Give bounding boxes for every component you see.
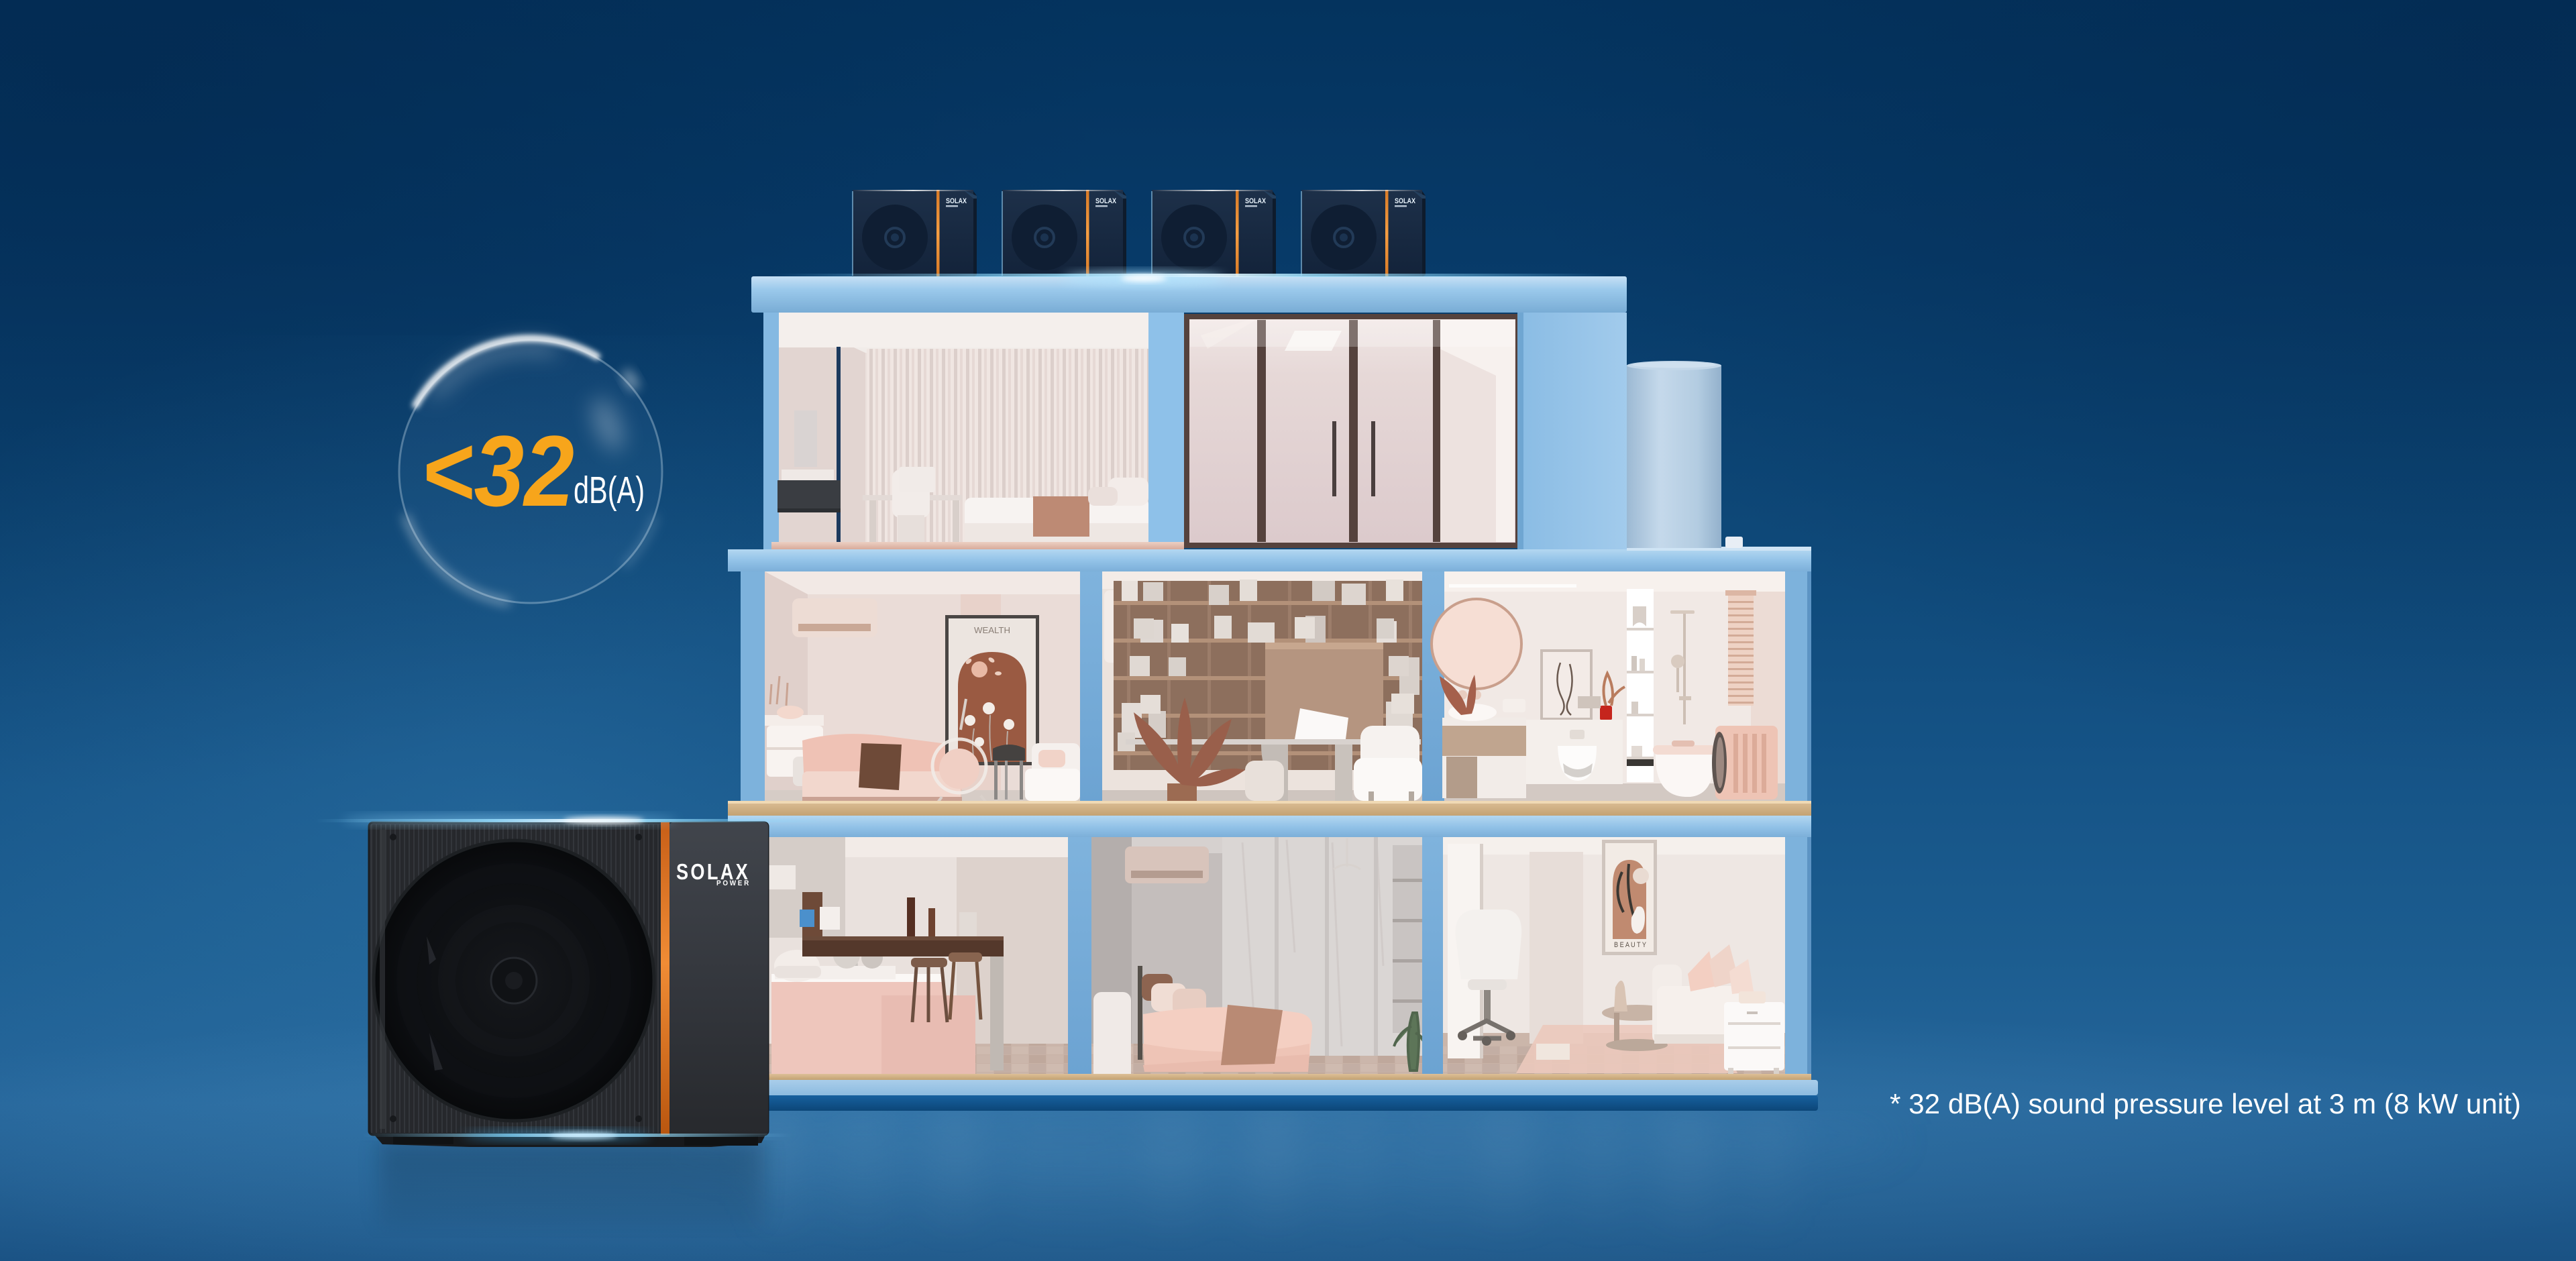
svg-text:SOLAX: SOLAX xyxy=(946,197,967,205)
svg-text:POWER: POWER xyxy=(716,879,751,887)
svg-text:SOLAX: SOLAX xyxy=(1095,197,1117,205)
svg-text:WEALTH: WEALTH xyxy=(974,625,1010,635)
svg-text:dB(A): dB(A) xyxy=(574,469,645,512)
svg-text:B E A U T Y: B E A U T Y xyxy=(1614,941,1647,949)
svg-text:<32: <32 xyxy=(421,415,574,527)
svg-text:SOLAX: SOLAX xyxy=(1395,197,1416,205)
svg-text:SOLAX: SOLAX xyxy=(1245,197,1267,205)
svg-text:* 32 dB(A) sound pressure leve: * 32 dB(A) sound pressure level at 3 m (… xyxy=(1890,1088,2521,1119)
